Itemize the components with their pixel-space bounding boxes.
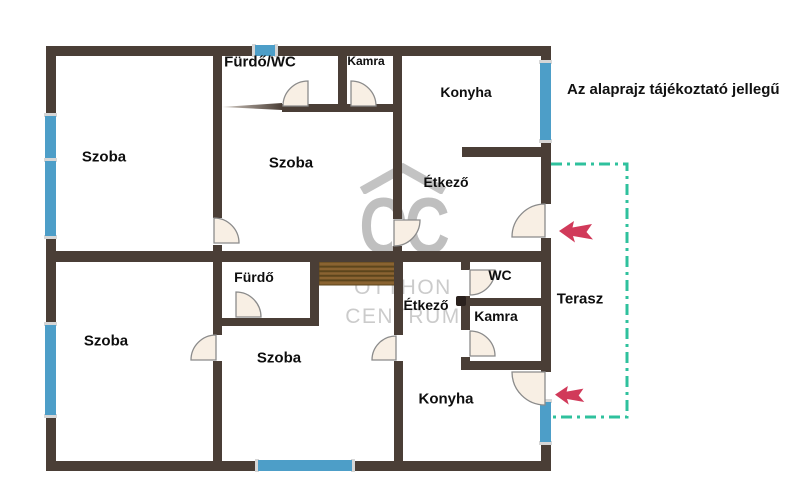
window-right-1 (540, 63, 551, 140)
wall-konyha-etkezo-stub (462, 147, 551, 157)
door-etkezo-terrace (512, 204, 545, 237)
window-right-2 (540, 402, 551, 442)
floor-plan-drawing (0, 0, 808, 500)
door-upper-szoba (214, 218, 239, 243)
wall-mid (46, 251, 551, 262)
window-left-2 (45, 161, 56, 236)
door-lower-left-szoba (191, 335, 216, 360)
window-top (255, 45, 275, 56)
wall-bath-kamra-divider (338, 56, 347, 112)
wall-lower-left-room-divider (213, 262, 222, 461)
door-lower-mid-szoba (372, 336, 396, 360)
door-furdo-wc-top (283, 81, 308, 106)
door-wc (470, 270, 495, 295)
sliding-door-line (222, 103, 282, 110)
door-konyha-terrace (512, 372, 545, 405)
wall-wc-kamra-divider (461, 298, 541, 306)
door-kamra-lower (470, 331, 495, 356)
terrace-boundary (551, 164, 627, 417)
disclaimer-text: Az alaprajz tájékoztató jellegű (567, 81, 780, 98)
door-furdo-lower (236, 292, 261, 317)
door-kamra-top (351, 81, 376, 106)
floor-plan-canvas: OC OTTHON CENTRUM SzobaSzobaFürdő/WCKamr… (0, 0, 808, 500)
entrance-arrow-upper-icon (559, 221, 593, 243)
window-left-3 (45, 325, 56, 415)
door-etkezo-upper (394, 220, 420, 246)
wall-furdo-right (310, 262, 319, 326)
wall-kamra-bottom (461, 361, 551, 370)
wall-outer-top (46, 46, 551, 56)
post-dot (456, 296, 466, 306)
wall-furdo-bottom (213, 318, 319, 326)
window-bottom (258, 460, 352, 471)
entrance-arrow-lower-icon (555, 386, 584, 405)
stairs (319, 262, 395, 285)
wall-lower-right-room-divider (394, 262, 403, 461)
window-left-1 (45, 116, 56, 159)
